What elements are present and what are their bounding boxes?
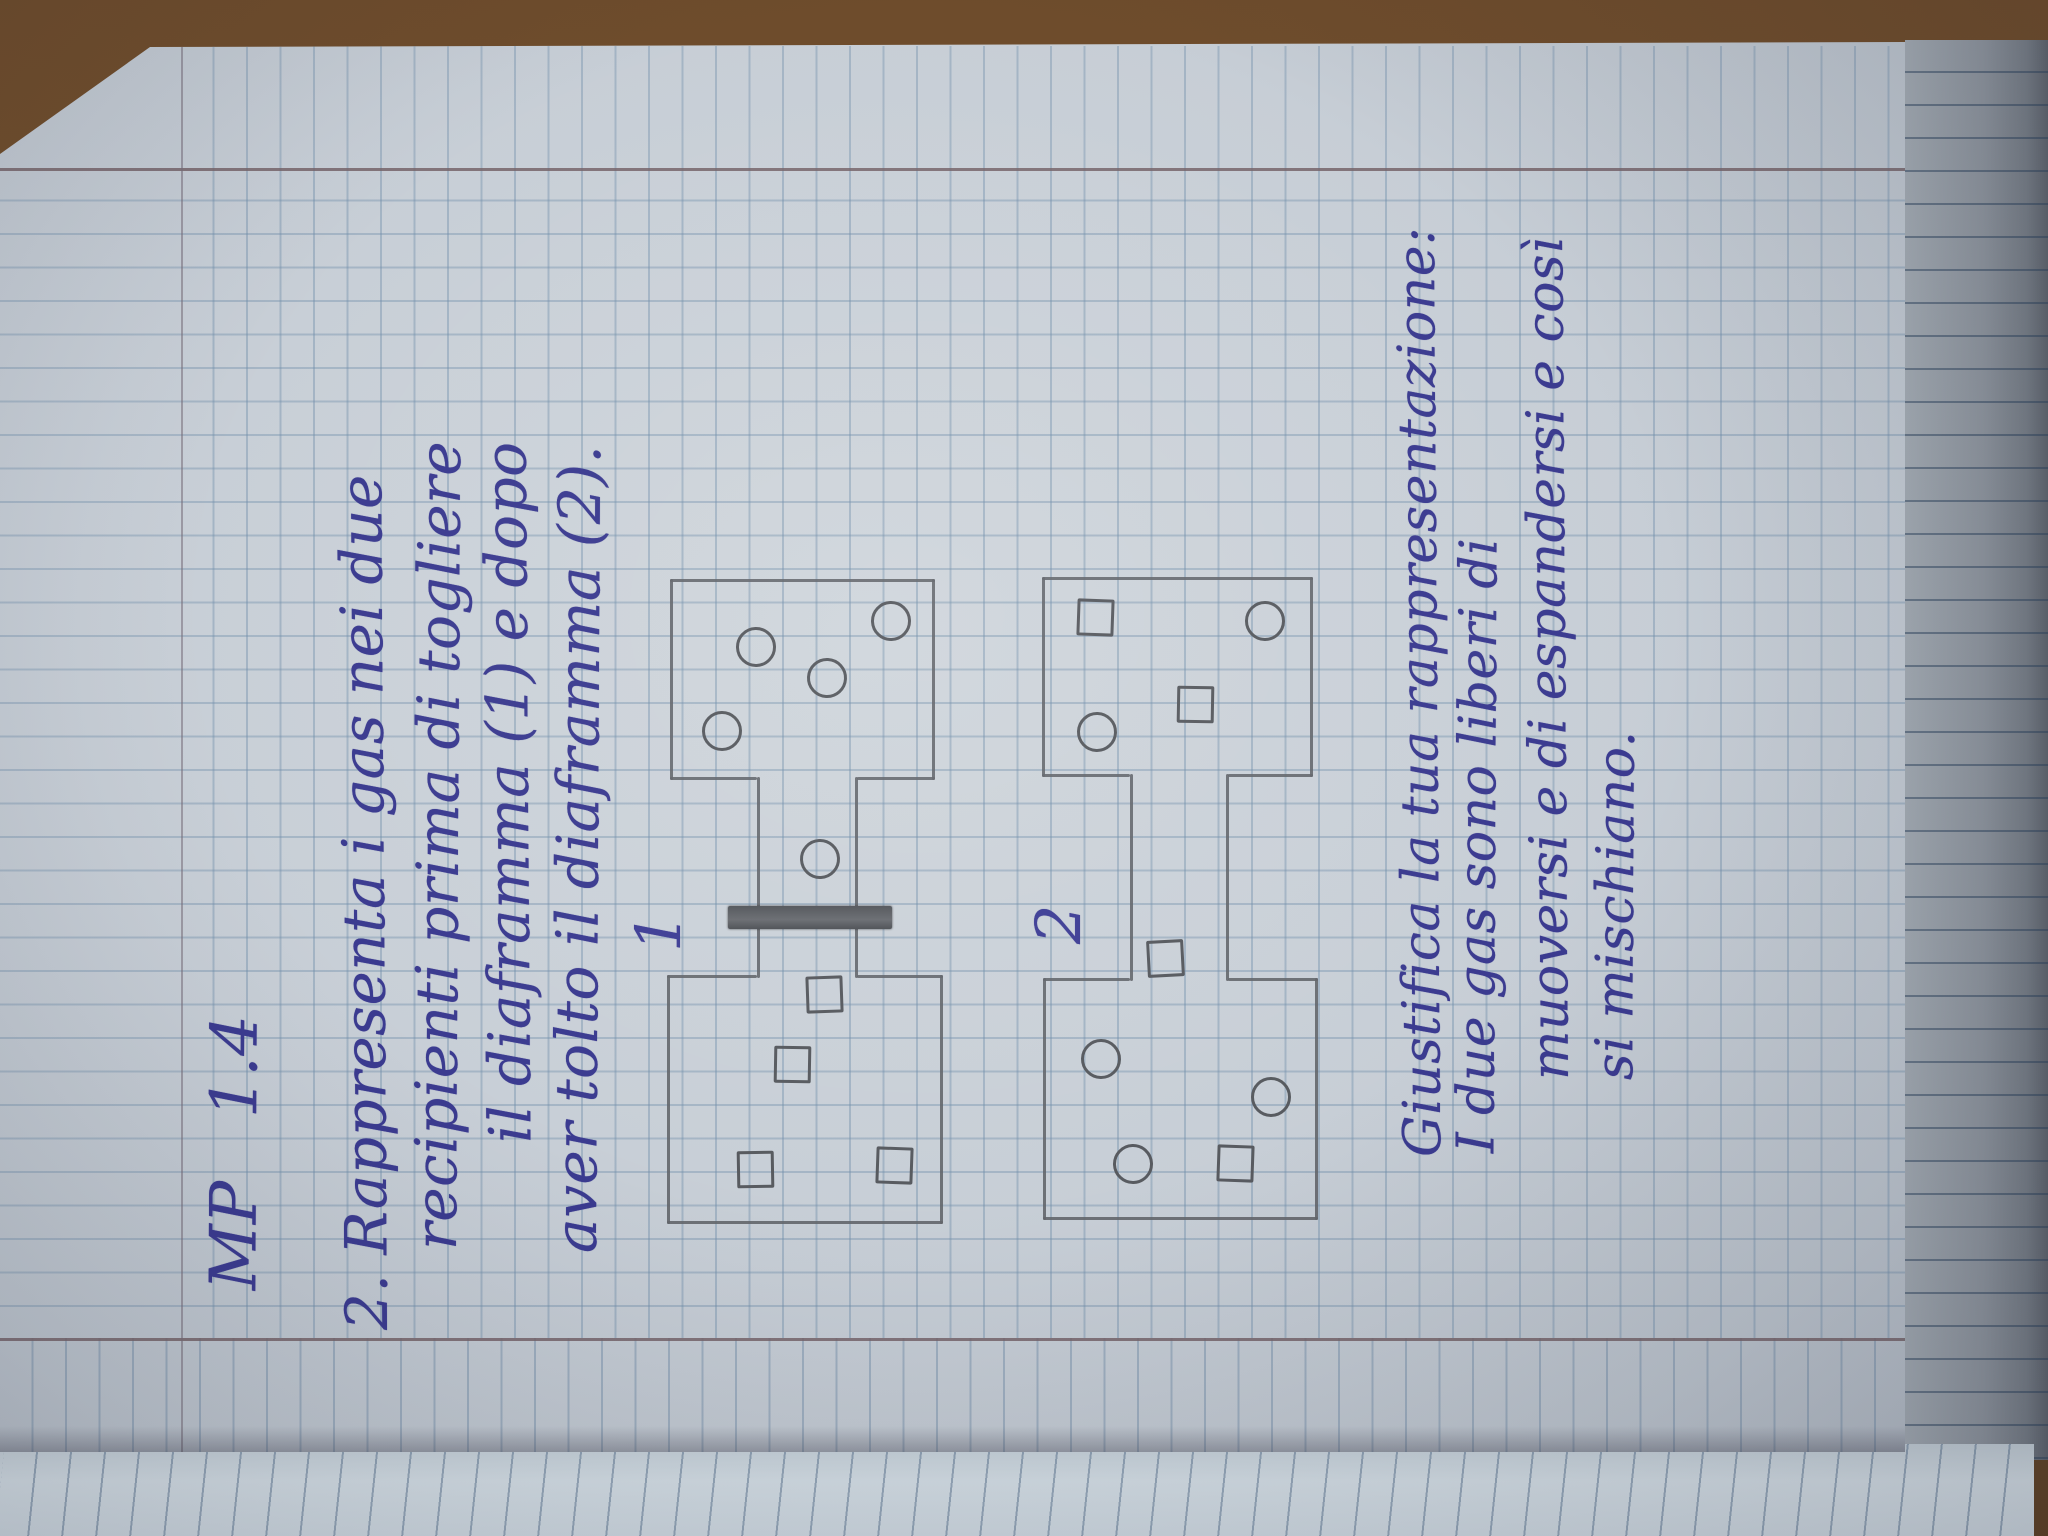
container-wall: [857, 975, 943, 978]
square-particle: [736, 1151, 774, 1189]
container-wall: [940, 975, 943, 1224]
handwritten-line: il diaframma (1) e dopo: [472, 441, 545, 1143]
handwritten-line: MP 1.4: [197, 1014, 272, 1290]
channel-wall: [855, 777, 858, 978]
container-wall: [1315, 978, 1318, 1220]
square-particle: [1176, 686, 1214, 724]
handwritten-line: 2. Rappresenta i gas nei due: [327, 474, 401, 1330]
container-wall: [857, 777, 935, 780]
figure-1-label: 1: [622, 913, 695, 952]
container-wall: [670, 579, 673, 780]
container-wall: [1043, 1217, 1318, 1220]
container-wall: [667, 975, 670, 1224]
diaphragm-bar: [728, 906, 892, 929]
circle-particle: [799, 838, 841, 880]
circle-particle: [1251, 1077, 1291, 1117]
circle-particle: [702, 711, 743, 752]
figure-2-label: 2: [1022, 905, 1095, 944]
container-wall: [1042, 577, 1313, 580]
handwritten-line: I due gas sono liberi di: [1446, 538, 1509, 1154]
container-wall: [670, 579, 935, 582]
square-particle: [1216, 1145, 1254, 1183]
circle-particle: [870, 600, 911, 641]
rotated-page-content: MP 1.42. Rappresenta i gas nei duerecipi…: [0, 0, 2048, 1536]
circle-particle: [806, 657, 848, 699]
handwritten-line: Giustifica la tua rappresentazione:: [1387, 227, 1453, 1157]
handwritten-line: aver tolto il diaframma (2).: [542, 444, 614, 1253]
circle-particle: [1076, 711, 1117, 752]
handwritten-line: recipienti prima di togliere: [402, 441, 474, 1250]
channel-wall: [757, 777, 760, 978]
circle-particle: [1081, 1039, 1122, 1080]
square-particle: [1076, 599, 1114, 637]
circle-particle: [1112, 1143, 1153, 1184]
circle-particle: [735, 626, 776, 667]
square-particle: [773, 1046, 811, 1084]
channel-wall: [1226, 774, 1229, 981]
channel-wall: [1130, 774, 1133, 981]
container-wall: [1043, 978, 1046, 1220]
container-wall: [1228, 978, 1318, 981]
container-wall: [1228, 774, 1313, 777]
container-wall: [1042, 577, 1045, 777]
container-wall: [670, 777, 757, 780]
container-wall: [1310, 577, 1313, 777]
container-wall: [932, 579, 935, 780]
handwritten-line: si mischiano.: [1585, 730, 1647, 1080]
container-wall: [1042, 774, 1130, 777]
container-wall: [667, 975, 757, 978]
square-particle: [805, 976, 843, 1014]
container-wall: [667, 1221, 943, 1224]
handwritten-line: muoversi e di espandersi e così: [1515, 237, 1581, 1081]
square-particle: [875, 1147, 913, 1185]
square-particle: [1146, 940, 1185, 979]
circle-particle: [1245, 601, 1286, 642]
container-wall: [1043, 978, 1130, 981]
notebook-photo: MP 1.42. Rappresenta i gas nei duerecipi…: [0, 0, 2048, 1536]
